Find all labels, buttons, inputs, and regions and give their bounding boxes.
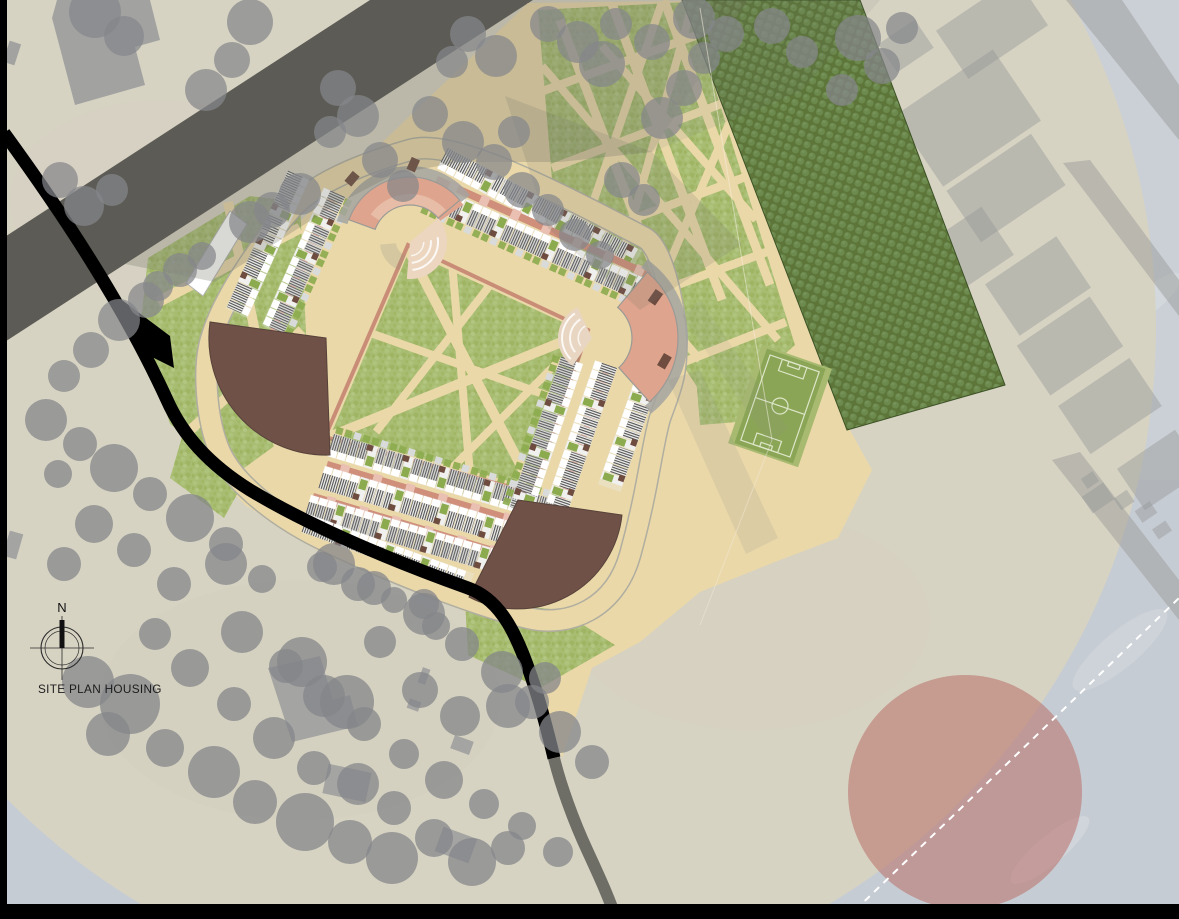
svg-text:SITE PLAN HOUSING: SITE PLAN HOUSING bbox=[38, 682, 162, 696]
svg-text:N: N bbox=[57, 600, 66, 615]
